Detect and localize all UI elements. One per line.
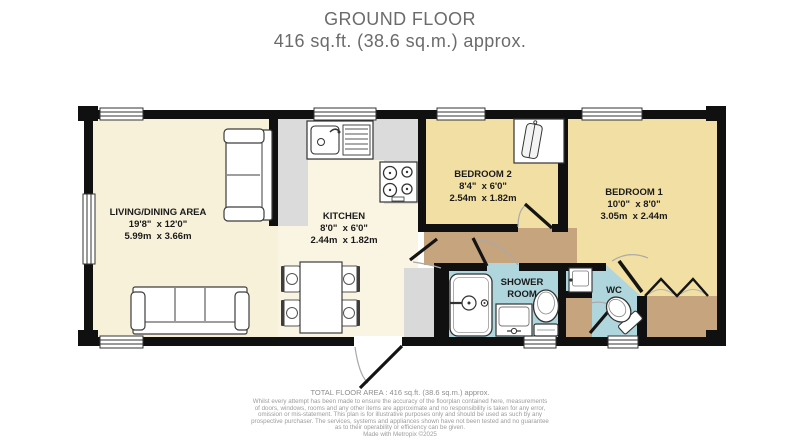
- window-icon: [582, 108, 642, 120]
- sink-drainer-icon: [307, 121, 373, 159]
- wall-corner-cap: [78, 106, 98, 121]
- wall-shower-left: [434, 263, 449, 342]
- window-icon: [314, 108, 376, 120]
- wall-shower-top-a: [449, 263, 487, 271]
- entrance-opening: [354, 336, 402, 347]
- wall-corner-cap: [706, 106, 726, 121]
- metropix-credit: Made with Metropix ©2025: [0, 432, 800, 439]
- door-leaf: [360, 346, 402, 388]
- window-icon: [608, 336, 638, 348]
- wash-basin-icon: [496, 304, 532, 336]
- chair-icon: [341, 300, 360, 326]
- sofa-icon: [224, 129, 272, 221]
- window-icon: [437, 108, 485, 120]
- floorplan-canvas: [0, 0, 800, 440]
- window-icon: [83, 194, 95, 264]
- entry-mat-area: [404, 268, 434, 342]
- entrance-door: [355, 346, 402, 388]
- wardrobe-icon: [514, 119, 564, 163]
- chair-icon: [341, 266, 360, 292]
- wc-lobby-floor: [566, 296, 592, 342]
- hallway-floor: [424, 228, 577, 265]
- chair-icon: [281, 300, 300, 326]
- wall-kitchen-bedroom2: [418, 113, 426, 232]
- window-icon: [100, 108, 143, 120]
- wash-basin-icon: [569, 268, 592, 292]
- floorplan-page: GROUND FLOOR 416 sq.ft. (38.6 sq.m.) app…: [0, 0, 800, 440]
- disclaimer: Whilst every attempt has been made to en…: [0, 399, 800, 439]
- hob-icon: [380, 162, 417, 202]
- wall-outer-right: [717, 110, 726, 346]
- wall-bedroom2-bottom: [418, 224, 518, 232]
- wall-shower-wc: [558, 263, 566, 342]
- door-arc-icon: [355, 347, 368, 383]
- total-floor-area: TOTAL FLOOR AREA : 416 sq.ft. (38.6 sq.m…: [0, 388, 800, 397]
- kitchen-counter-left: [278, 113, 308, 226]
- chair-icon: [281, 266, 300, 292]
- wall-corner-cap: [78, 330, 98, 346]
- shower-enclosure-icon: [450, 274, 492, 336]
- window-icon: [524, 336, 556, 348]
- toilet-icon: [534, 290, 559, 336]
- window-icon: [100, 336, 143, 348]
- sofa-icon: [131, 287, 249, 334]
- wall-corner-cap: [706, 330, 726, 346]
